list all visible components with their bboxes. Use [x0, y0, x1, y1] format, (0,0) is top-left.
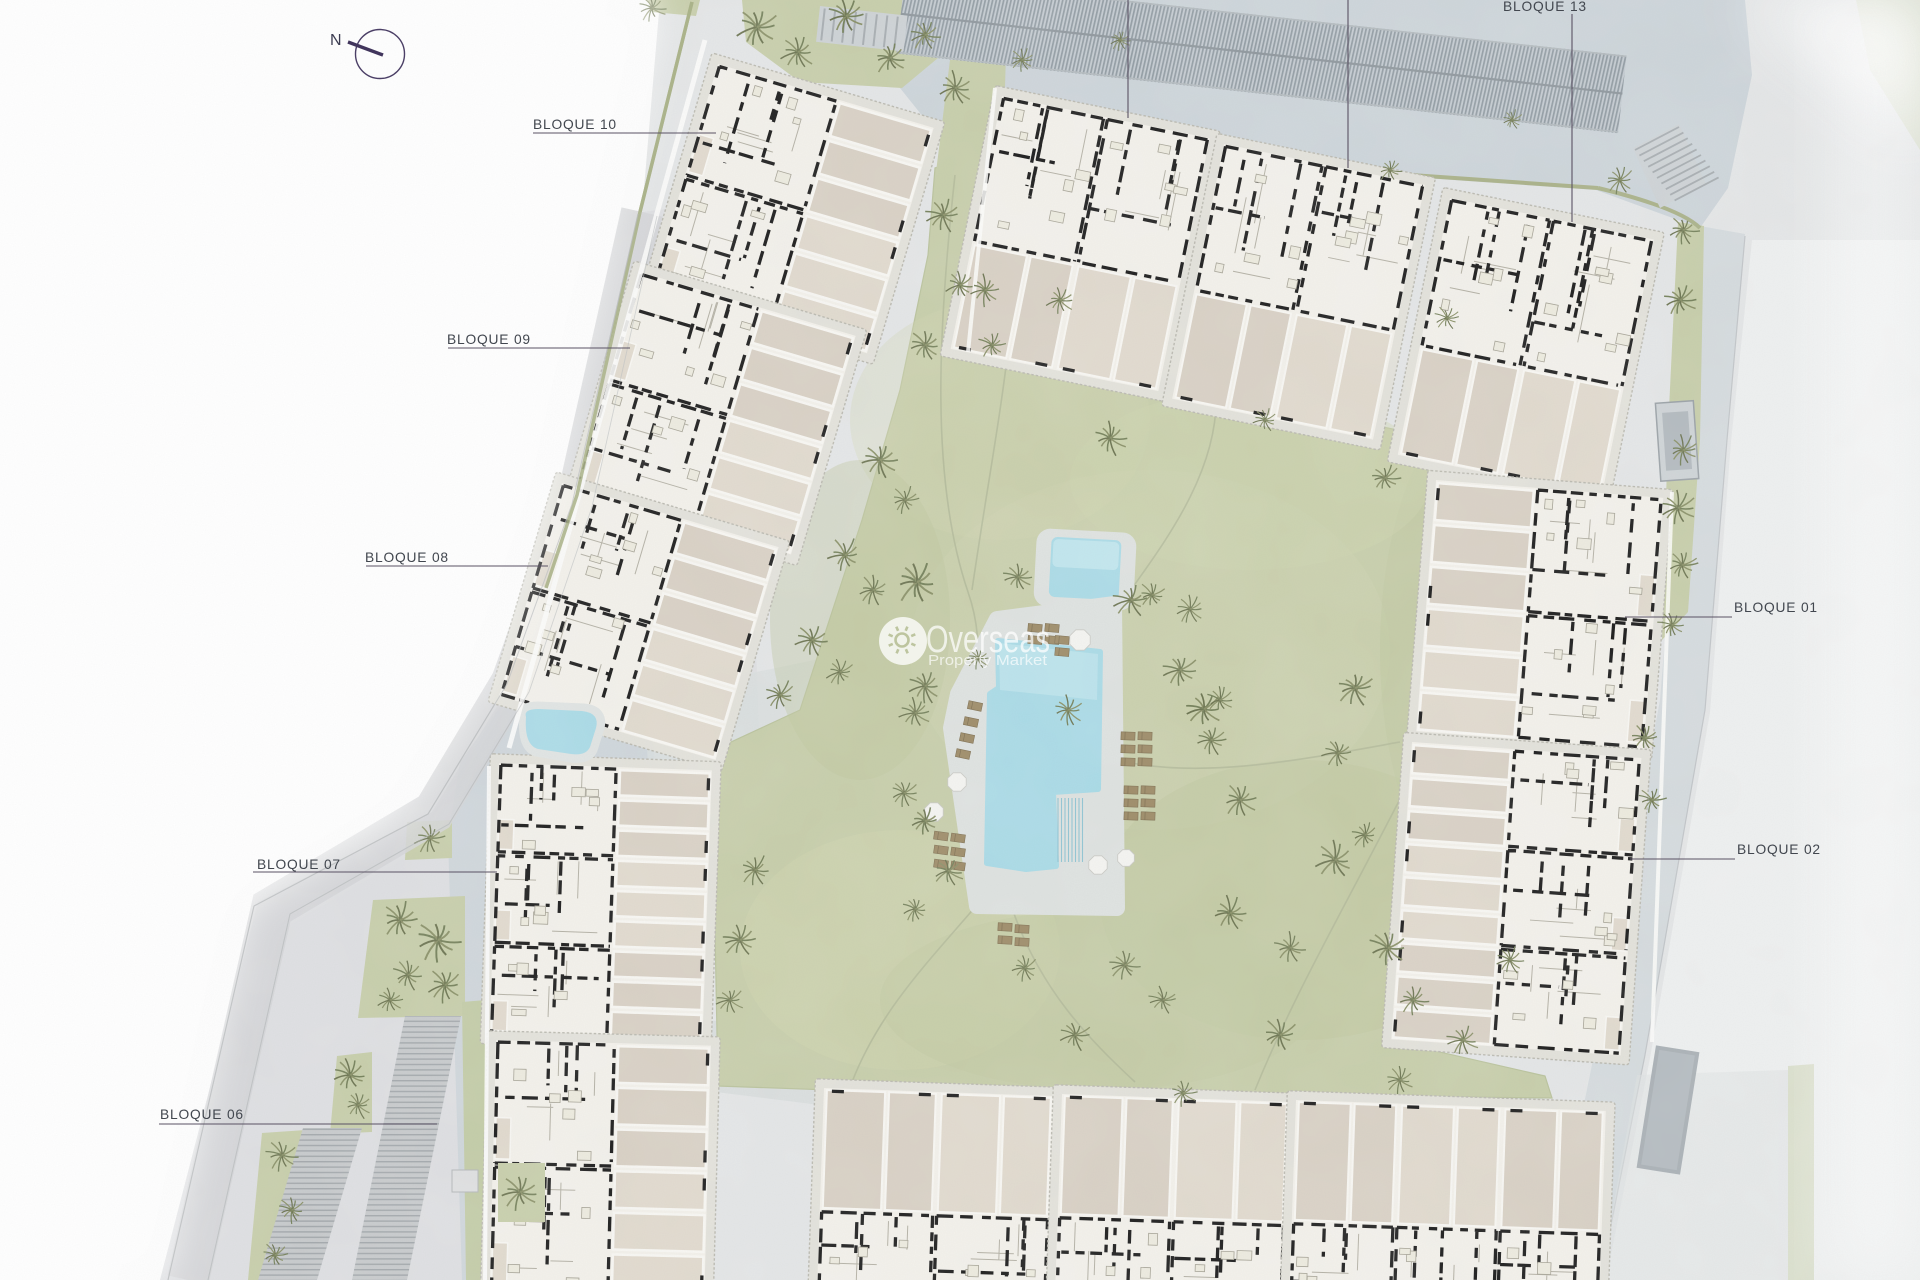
svg-text:N: N: [330, 32, 342, 49]
svg-text:BLOQUE 08: BLOQUE 08: [365, 550, 449, 565]
svg-text:BLOQUE 02: BLOQUE 02: [1737, 842, 1821, 857]
svg-text:Property Market: Property Market: [928, 652, 1048, 669]
svg-text:BLOQUE 13: BLOQUE 13: [1503, 0, 1587, 14]
svg-text:BLOQUE 07: BLOQUE 07: [257, 857, 341, 872]
svg-text:BLOQUE 09: BLOQUE 09: [447, 332, 531, 347]
svg-text:BLOQUE 06: BLOQUE 06: [160, 1107, 244, 1122]
svg-text:BLOQUE 10: BLOQUE 10: [533, 117, 617, 132]
svg-text:BLOQUE 01: BLOQUE 01: [1734, 600, 1818, 615]
